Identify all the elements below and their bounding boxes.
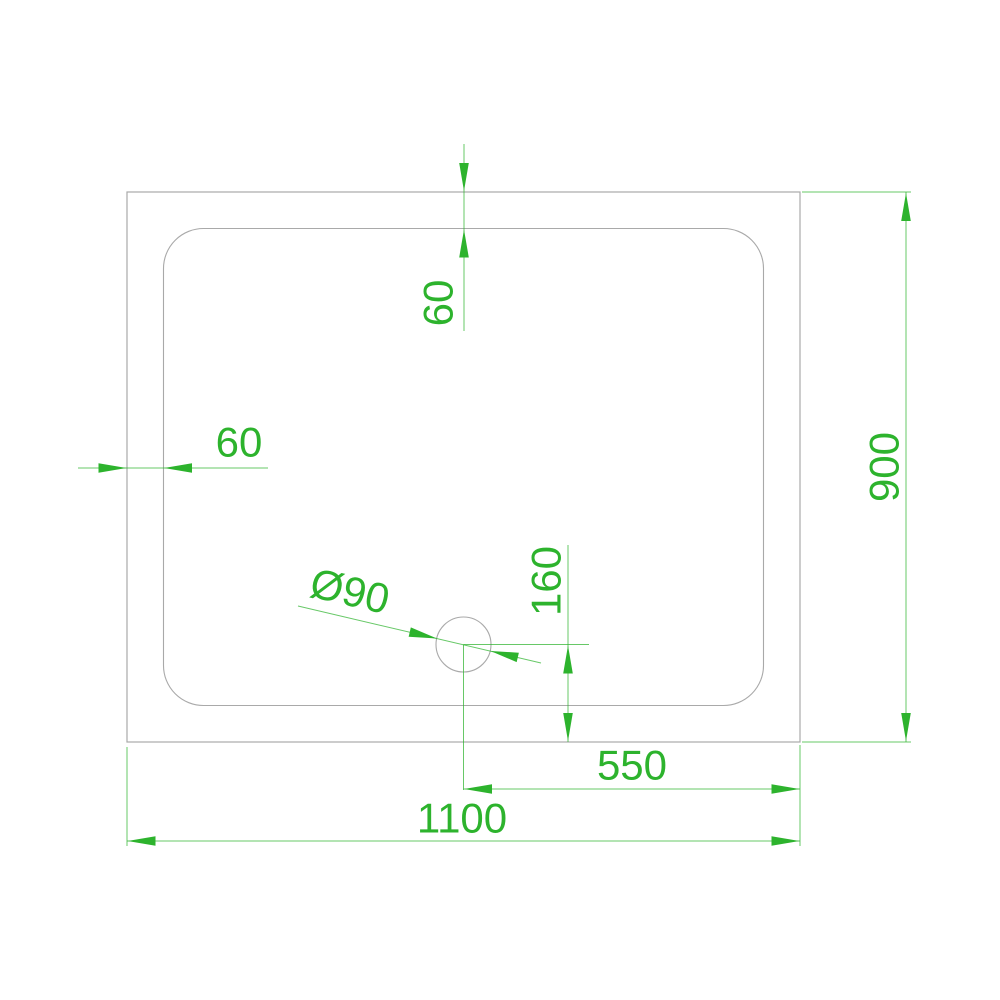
- dim-label-rim-top: 60: [415, 280, 462, 327]
- arrowhead-down-icon: [563, 713, 573, 741]
- dim-label-drain-diameter: Ø90: [306, 559, 394, 623]
- arrowhead-up-icon: [901, 193, 911, 221]
- arrowhead-down-icon: [901, 713, 911, 741]
- arrowhead-up-icon: [459, 230, 469, 258]
- drawing-canvas: 60 60 900 550: [0, 0, 1000, 1000]
- dim-rim-top: 60: [415, 144, 469, 331]
- dim-label-width: 1100: [417, 795, 507, 842]
- arrowhead-down-icon: [459, 163, 469, 191]
- dim-drain-offset-right: 550: [464, 645, 801, 794]
- arrowhead-lower-right-icon: [409, 627, 438, 643]
- arrowhead-left-icon: [128, 836, 156, 846]
- dim-depth: 900: [802, 192, 911, 742]
- dim-drain-offset-bottom: 160: [464, 545, 590, 742]
- arrowhead-right-icon: [772, 836, 800, 846]
- arrowhead-right-icon: [99, 463, 127, 473]
- arrowhead-up-icon: [563, 646, 573, 674]
- arrowhead-left-icon: [164, 463, 192, 473]
- technical-drawing: 60 60 900 550: [0, 0, 1000, 1000]
- dim-label-rim-left: 60: [216, 419, 263, 466]
- arrowhead-upper-left-icon: [489, 646, 518, 662]
- arrowhead-right-icon: [772, 784, 800, 794]
- arrowhead-left-icon: [464, 784, 492, 794]
- dim-label-drain-offset-bottom: 160: [523, 546, 570, 616]
- dim-rim-left: 60: [78, 419, 268, 473]
- dim-label-drain-offset-right: 550: [597, 742, 667, 789]
- dim-label-depth: 900: [861, 432, 908, 502]
- dim-drain-diameter: Ø90: [298, 559, 541, 663]
